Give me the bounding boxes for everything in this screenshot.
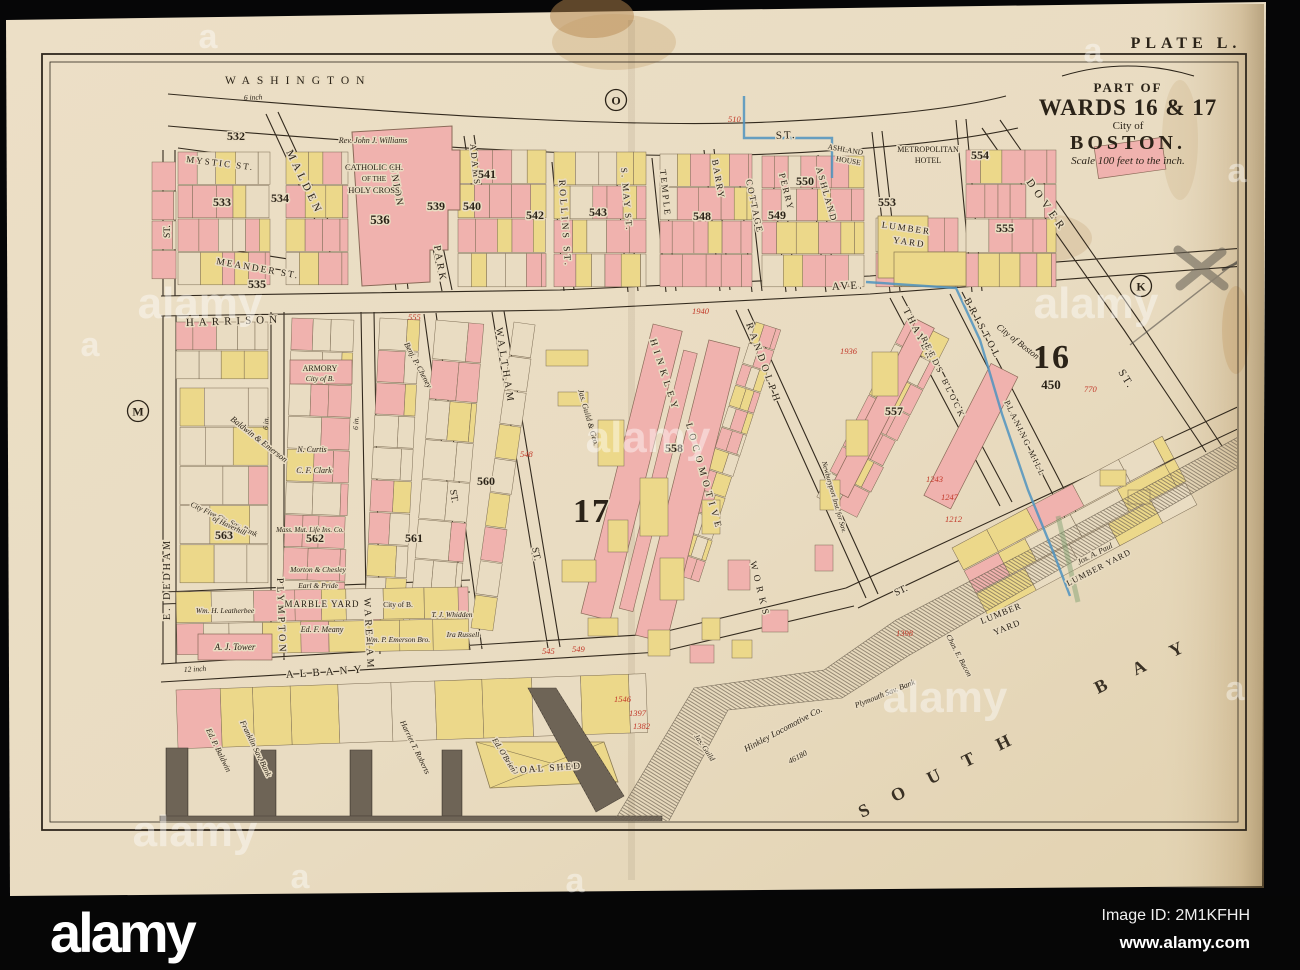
building-lot — [180, 466, 223, 504]
pipe-note: 6 in. — [261, 416, 270, 430]
building-lot — [672, 221, 694, 253]
building-lot — [777, 222, 797, 254]
block-number: 543 — [589, 205, 607, 219]
building-lot — [397, 416, 415, 448]
place-label: ARMORY — [303, 364, 338, 373]
building-lot — [340, 219, 348, 251]
block-number: 553 — [878, 195, 896, 209]
building-lot — [575, 152, 598, 185]
building-lot — [419, 479, 448, 520]
place-label: MARBLE YARD — [285, 599, 360, 609]
owner-label: Ira Russell — [446, 630, 480, 639]
place-label: City of B. — [306, 374, 335, 383]
building-lot — [592, 254, 605, 287]
building-lot — [487, 254, 506, 287]
watermark-text: alamy — [133, 807, 258, 856]
building-lot — [323, 219, 340, 251]
red-note: 510 — [728, 114, 742, 124]
building-lot — [742, 255, 753, 287]
stock-photo-frame: WASHINGTON ST. MYSTIC ST. ST. MALDEN MEA… — [0, 0, 1300, 970]
building-lot — [326, 186, 343, 218]
ward-number-17: 17 — [573, 493, 611, 530]
owner-label: N. Curtis — [296, 445, 326, 454]
building-lot — [546, 350, 588, 366]
building-lot — [660, 558, 684, 600]
building-lot — [690, 645, 714, 663]
watermark-text: alamy — [138, 279, 263, 328]
red-note: 1382 — [633, 721, 651, 731]
building-lot — [1012, 219, 1033, 252]
index-circle-o: O — [606, 90, 627, 111]
watermark-text: alamy — [586, 413, 711, 462]
building-lot — [456, 362, 481, 403]
owner-label: Earl & Pride — [297, 581, 338, 590]
watermark-letter: a — [81, 326, 101, 364]
alamy-logo: alamy — [50, 901, 197, 964]
building-lot — [495, 424, 521, 460]
building-lot — [180, 545, 214, 583]
building-lot — [368, 512, 390, 544]
building-lot — [1025, 150, 1047, 183]
index-letter: M — [132, 405, 143, 419]
building-lot — [323, 152, 342, 184]
building-lot — [476, 561, 502, 597]
building-lot — [426, 400, 451, 441]
red-note: 1243 — [926, 474, 943, 484]
plate-label: PLATE L. — [1131, 35, 1242, 52]
owner-label: Wm. H. Leatherbee — [196, 606, 255, 615]
building-lot — [373, 415, 399, 447]
building-lot — [173, 221, 176, 249]
building-lot — [599, 152, 617, 185]
block-number: 561 — [405, 531, 423, 545]
street-label-st-left: ST. — [163, 225, 173, 238]
building-lot — [333, 451, 350, 483]
building-lot — [702, 618, 720, 640]
building-lot — [233, 186, 246, 218]
building-lot — [328, 385, 352, 417]
building-lot — [481, 527, 507, 563]
building-lot — [690, 154, 710, 186]
building-lot — [846, 420, 868, 456]
block-number: 534 — [271, 191, 289, 205]
watermark-text: alamy — [883, 673, 1008, 722]
pipe-note: 12 inch — [184, 664, 207, 674]
owner-label: Morton & Chesley — [289, 565, 346, 574]
building-lot — [370, 480, 394, 512]
building-lot — [762, 156, 775, 188]
building-lot — [978, 254, 999, 287]
image-id-text: Image ID: 2M1KFHH — [1102, 907, 1250, 924]
building-lot — [587, 220, 607, 253]
building-lot — [289, 384, 311, 416]
building-lot — [221, 351, 244, 379]
owner-label: A. J. Tower — [214, 642, 256, 652]
owner-label: T. J. Whidden — [431, 610, 472, 619]
building-lot — [471, 254, 486, 287]
building-lot — [447, 402, 472, 443]
building-lot — [283, 547, 308, 579]
building-lot — [312, 319, 331, 351]
building-lot — [512, 219, 533, 252]
building-lot — [576, 254, 592, 287]
red-note: 545 — [542, 646, 555, 656]
owner-label: Ed. F. Meany — [300, 625, 344, 634]
building-lot — [180, 427, 205, 465]
pipe-note: 6 in. — [351, 416, 360, 430]
building-lot — [944, 218, 958, 252]
building-lot — [706, 255, 721, 287]
building-lot — [246, 219, 260, 251]
building-lot — [178, 186, 193, 218]
building-lot — [435, 679, 484, 739]
building-lot — [783, 255, 802, 287]
watermark-text: alamy — [1034, 279, 1159, 328]
building-lot — [694, 221, 708, 253]
red-note: 1397 — [629, 708, 647, 718]
building-lot — [1047, 150, 1056, 183]
block-number: 555 — [996, 221, 1014, 235]
building-lot — [152, 251, 176, 279]
building-lot — [448, 522, 466, 562]
red-note: 1546 — [614, 694, 632, 704]
building-lot — [506, 254, 527, 287]
red-note: 1212 — [945, 514, 963, 524]
building-lot — [966, 185, 985, 218]
building-lot — [342, 253, 348, 285]
building-lot — [966, 219, 989, 252]
building-lot — [372, 447, 402, 480]
building-lot — [1033, 219, 1047, 252]
building-lot — [722, 221, 741, 253]
owner-label: C. F. Clark — [296, 466, 332, 475]
building-lot — [1100, 470, 1126, 486]
building-lot — [291, 318, 313, 350]
cartouche-part-of: PART OF — [1093, 80, 1162, 95]
watermark-letter: a — [1226, 670, 1246, 708]
building-lot — [252, 686, 292, 746]
place-label: METROPOLITAN — [897, 145, 959, 154]
building-lot — [762, 255, 783, 287]
building-lot — [728, 560, 750, 590]
building-lot — [290, 684, 340, 744]
block-number: 450 — [1041, 377, 1061, 392]
building-lot — [433, 320, 469, 362]
red-note: 548 — [520, 449, 534, 459]
place-label: HOTEL — [915, 156, 941, 165]
block-number: 539 — [427, 199, 445, 213]
building-lot — [458, 219, 475, 252]
building-lot — [966, 254, 978, 287]
building-lot — [249, 466, 268, 504]
building-lot — [286, 219, 305, 251]
building-lot — [734, 188, 747, 220]
building-lot — [640, 478, 668, 536]
building-lot — [180, 388, 204, 426]
building-lot — [375, 383, 406, 416]
building-lot — [233, 219, 246, 251]
lumber-yard-building — [894, 252, 966, 286]
building-lot — [250, 506, 268, 544]
building-lot — [815, 545, 833, 571]
place-label: HOLY CROSS — [348, 185, 400, 195]
block-number: 541 — [478, 167, 496, 181]
building-lot — [247, 545, 268, 583]
building-lot — [526, 254, 541, 287]
building-lot — [429, 360, 459, 401]
block-number: 549 — [768, 208, 786, 222]
watermark-letter: a — [566, 862, 586, 900]
building-lot — [199, 351, 221, 379]
building-lot — [244, 351, 268, 379]
pipe-note: 6 inch — [244, 92, 263, 102]
building-lot — [533, 219, 545, 252]
block-number: 533 — [213, 195, 231, 209]
building-lot — [588, 618, 618, 636]
building-lot — [512, 150, 527, 183]
owner-label: Wm. P. Emerson Bro. — [366, 635, 430, 644]
building-lot — [641, 254, 646, 287]
building-lot — [152, 162, 176, 190]
building-lot — [855, 222, 865, 254]
building-lot — [218, 219, 232, 251]
red-note: 1936 — [840, 346, 858, 356]
building-lot — [475, 219, 497, 252]
cartouche-city: BOSTON. — [1070, 132, 1186, 154]
building-lot — [542, 254, 547, 287]
owner-label: Mass. Mut. Life Ins. Co. — [275, 526, 344, 534]
building-lot — [392, 481, 411, 513]
building-lot — [608, 520, 628, 552]
building-lot — [573, 220, 587, 253]
building-lot — [152, 192, 174, 220]
building-lot — [621, 254, 640, 287]
building-lot — [377, 350, 406, 383]
building-lot — [985, 185, 998, 218]
building-lot — [205, 427, 233, 465]
red-note: 1247 — [941, 492, 959, 502]
building-lot — [340, 484, 348, 516]
street-label-st-a: ST. — [447, 489, 460, 504]
place-label: CATHOLIC CH. — [345, 162, 403, 172]
building-lot — [660, 221, 672, 253]
building-lot — [366, 544, 396, 577]
street-label-dedham: E. DEDHAM — [162, 538, 173, 620]
building-lot — [819, 222, 841, 254]
building-lot — [285, 482, 313, 515]
block-number: 540 — [463, 199, 481, 213]
building-lot — [246, 186, 269, 218]
building-lot — [797, 189, 818, 221]
building-lot — [458, 254, 471, 287]
block-number: 550 — [796, 174, 814, 188]
building-lot — [214, 545, 247, 583]
block-number: 536 — [370, 212, 390, 227]
building-lot — [741, 221, 752, 253]
watermark-letter: a — [1228, 152, 1248, 190]
building-lot — [309, 152, 323, 184]
alamy-info-bar: alamy Image ID: 2M1KFHH www.alamy.com — [0, 896, 1300, 970]
red-note: 1940 — [692, 306, 710, 316]
building-lot — [580, 674, 630, 734]
building-lot — [258, 152, 270, 184]
building-lot — [174, 192, 176, 220]
owner-label: Rev. John J. Williams — [338, 136, 408, 145]
building-lot — [400, 449, 413, 481]
building-lot — [677, 154, 690, 186]
red-note: 549 — [572, 644, 586, 654]
building-lot — [176, 351, 199, 379]
building-lot — [465, 323, 483, 363]
building-lot — [796, 222, 818, 254]
red-note: 1398 — [896, 628, 914, 638]
street-label-washington: WASHINGTON — [225, 75, 371, 87]
building-lot — [482, 678, 534, 738]
building-lot — [454, 442, 474, 482]
block-number: 560 — [477, 474, 495, 488]
place-label: OF THE — [362, 175, 386, 183]
building-lot — [299, 253, 318, 285]
building-lot — [998, 185, 1010, 218]
building-lot — [312, 483, 341, 516]
building-lot — [1010, 185, 1026, 218]
building-lot — [471, 595, 497, 631]
red-note: 555 — [408, 312, 421, 322]
block-number: 554 — [971, 148, 989, 162]
building-lot — [527, 150, 546, 183]
building-lot — [660, 255, 682, 287]
building-lot — [330, 319, 354, 351]
building-lot — [648, 630, 670, 656]
building-lot — [223, 466, 249, 504]
building-lot — [872, 352, 898, 396]
building-lot — [310, 384, 329, 416]
cartouche-wards: WARDS 16 & 17 — [1039, 95, 1217, 120]
block-number: 532 — [227, 129, 245, 143]
building-lot — [404, 384, 417, 416]
block-number: 548 — [693, 209, 711, 223]
building-lot — [999, 254, 1020, 287]
building-lot — [178, 219, 199, 251]
cartouche-scale: Scale 100 feet to the inch. — [1071, 155, 1185, 167]
building-lot — [637, 186, 646, 219]
alamy-url-text: www.alamy.com — [1119, 933, 1250, 952]
index-letter: O — [611, 94, 620, 108]
watermark-letter: a — [1084, 32, 1104, 70]
building-lot — [605, 254, 621, 287]
block-number: 557 — [885, 404, 903, 418]
cartouche-city-of: City of — [1113, 120, 1144, 132]
building-lot — [607, 186, 623, 219]
building-lot — [395, 546, 408, 578]
building-lot — [485, 493, 510, 529]
watermark-letter: a — [199, 18, 219, 56]
building-lot — [199, 219, 218, 251]
building-lot — [803, 255, 826, 287]
building-lot — [708, 221, 722, 253]
red-note: 770 — [1084, 384, 1098, 394]
building-lot — [732, 640, 752, 658]
building-lot — [497, 219, 512, 252]
index-circle-m: M — [128, 401, 149, 422]
building-lot — [841, 222, 855, 254]
building-lot — [305, 219, 323, 251]
street-label-washington-st: ST. — [776, 129, 797, 142]
block-number: 542 — [526, 208, 544, 222]
map-plate-image: WASHINGTON ST. MYSTIC ST. ST. MALDEN MEA… — [0, 0, 1300, 970]
street-label-ave: AVE. — [832, 279, 865, 293]
building-lot — [852, 189, 865, 221]
building-lot — [259, 219, 270, 251]
building-lot — [490, 185, 512, 218]
owner-label: City of B. — [383, 600, 413, 609]
ward-number-16: 16 — [1033, 339, 1071, 376]
building-lot — [509, 322, 535, 358]
building-lot — [338, 682, 393, 743]
building-lot — [562, 560, 596, 582]
building-lot — [634, 152, 647, 185]
building-lot — [422, 440, 457, 481]
building-lot — [1002, 150, 1025, 183]
building-lot — [343, 186, 348, 218]
watermark-letter: a — [291, 858, 311, 896]
building-lot — [319, 253, 342, 285]
building-lot — [682, 255, 706, 287]
building-lot — [721, 255, 741, 287]
